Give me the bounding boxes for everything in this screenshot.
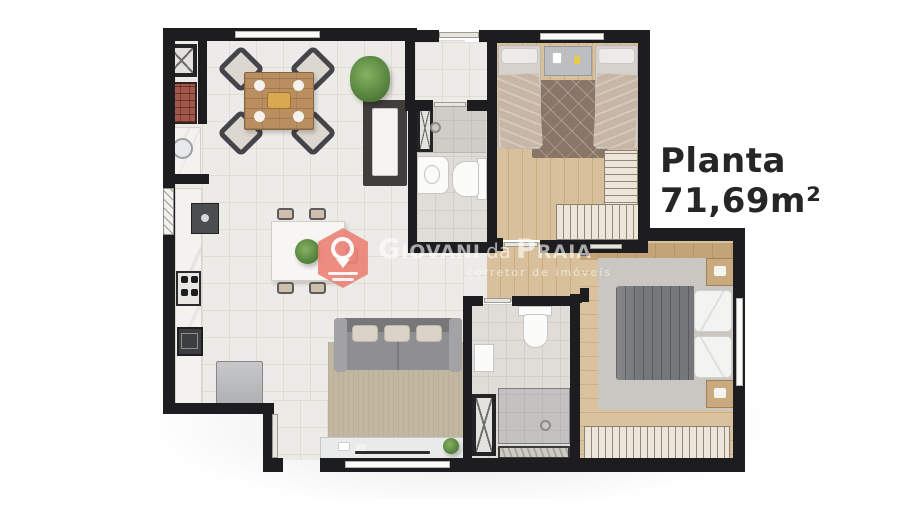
sofa-pillow-1 [352,325,378,342]
master-bed-pillow-top [694,290,732,332]
bedroom1-bed-right-pillow [598,48,635,64]
brand-giovani: Giovani [378,234,481,265]
window-kitchen-hatch [163,188,174,235]
master-nightstand-top-decor [714,266,726,276]
pin-ring [331,237,354,260]
entrance-door [439,32,479,38]
shower-drain-1 [430,122,441,133]
wall-corridor-jog [570,294,582,303]
toilet1-bowl [452,161,479,197]
brand-name: Giovani da Praia corretor de imóveis [378,234,612,279]
floorplan-image: Giovani da Praia corretor de imóveis Pla… [0,0,900,506]
oven-door-line [181,333,198,349]
bathroom2-niche [474,344,494,372]
bathroom1-sink-basin [424,165,440,184]
wall-right-bedroom1 [638,30,650,240]
master-wardrobe [584,426,730,462]
wall-notch-horizontal [163,403,273,414]
pin-wave-1 [328,272,358,275]
toilet2-bowl [523,314,548,348]
bathroom1-door [434,102,466,107]
bedroom1-bed-left-pillow [501,48,538,64]
shower-enclosure-2 [498,388,570,444]
location-pin-icon [314,228,372,288]
sofa-pillow-3 [416,325,442,342]
sofa-armrest-left [334,318,347,372]
window-living [345,461,450,468]
master-bed-blanket [616,286,694,380]
window-dining [235,31,320,38]
master-nightstand-bottom-decor [714,388,726,398]
wall-entry-partition [405,38,415,104]
sofa-pillow-2 [384,325,410,342]
master-bed-pillow-bottom [694,336,732,378]
console-plant [443,438,459,454]
refrigerator [216,361,263,406]
dinner-plates [254,80,265,91]
window-bedroom1 [540,33,604,40]
console-decor [338,442,350,451]
bedroom1-nightstand-decor [552,52,562,64]
wall-living-bathroom2 [463,296,472,465]
table-centerpiece [267,92,291,109]
sofa-armrest-right [449,318,462,372]
cooktop-burners [181,276,188,283]
sideboard-top [372,108,398,176]
bar-stool-2 [309,208,326,220]
wall-mid-vertical [487,30,497,253]
wall-top-entry-left [413,30,439,42]
brand-da: da [486,239,511,263]
dining-palm-plant [350,56,390,102]
bathroom2-door [484,298,511,303]
cooktop [176,271,201,306]
wall-bathroom2-right [570,296,580,465]
bar-stool-3 [277,282,294,294]
wall-bathroom2-top-left [463,296,483,306]
bedroom1-bed-right-blanket [593,73,639,149]
kitchen-sink-faucet [201,214,209,222]
pin-tail [336,259,350,268]
laundry-sink [172,138,193,159]
bar-stool-1 [277,208,294,220]
wall-service-vertical [198,38,207,124]
wall-top-master [645,228,745,241]
watermark: Giovani da Praia corretor de imóveis [312,226,612,284]
tv [355,451,430,454]
window-master [736,298,743,386]
shower-drain-2 [540,420,551,431]
brand-praia: Praia [516,234,592,265]
brand-subtitle: corretor de imóveis [378,266,612,279]
area-label: Planta 71,69m² [660,141,900,221]
wall-bathroom1-top-right [467,100,497,111]
floor-entry-hall [415,42,487,104]
bathroom2-shaft [472,394,496,456]
wall-service-horizontal [163,174,209,184]
pin-wave-2 [332,278,354,281]
balcony-door [272,414,278,458]
bedroom1-bed-left-blanket [497,73,543,149]
wall-bottom-left [263,458,283,472]
